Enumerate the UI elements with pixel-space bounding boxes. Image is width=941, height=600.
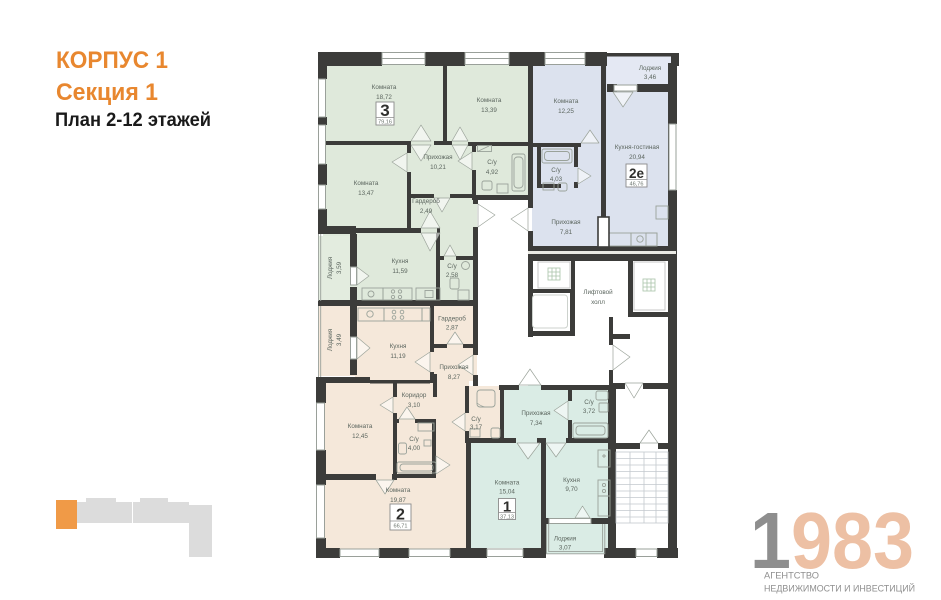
svg-text:С/у: С/у <box>471 416 481 423</box>
svg-text:37,13: 37,13 <box>500 514 514 520</box>
svg-text:13,39: 13,39 <box>481 107 497 114</box>
svg-text:1: 1 <box>503 499 511 516</box>
svg-text:3,46: 3,46 <box>644 74 657 81</box>
svg-text:Комната: Комната <box>477 97 502 104</box>
svg-text:С/у: С/у <box>584 399 594 406</box>
svg-text:2е: 2е <box>629 166 645 181</box>
svg-text:4,00: 4,00 <box>408 445 421 452</box>
svg-text:3,72: 3,72 <box>583 408 596 415</box>
svg-text:9,70: 9,70 <box>565 486 578 493</box>
svg-text:С/у: С/у <box>551 167 561 174</box>
svg-text:7,81: 7,81 <box>560 229 573 236</box>
svg-text:Прихожая: Прихожая <box>551 219 580 226</box>
svg-text:79,16: 79,16 <box>378 120 392 126</box>
svg-text:План 2-12 этажей: План 2-12 этажей <box>55 110 211 131</box>
svg-text:Прихожая: Прихожая <box>423 154 452 161</box>
svg-text:12,45: 12,45 <box>352 433 368 440</box>
svg-text:Кухня: Кухня <box>392 258 409 265</box>
svg-text:3,07: 3,07 <box>559 545 572 552</box>
svg-text:4,92: 4,92 <box>486 169 499 176</box>
svg-text:12,25: 12,25 <box>558 108 574 115</box>
svg-text:Комната: Комната <box>348 423 373 430</box>
svg-text:Кухня: Кухня <box>390 343 407 350</box>
svg-text:11,19: 11,19 <box>390 353 406 360</box>
svg-text:Кухня-гостиная: Кухня-гостиная <box>615 144 660 151</box>
svg-text:20,94: 20,94 <box>629 154 645 161</box>
svg-text:13,47: 13,47 <box>358 190 374 197</box>
svg-text:3,10: 3,10 <box>408 402 421 409</box>
svg-text:3,17: 3,17 <box>470 424 483 431</box>
svg-text:3,49: 3,49 <box>336 333 343 346</box>
svg-text:Комната: Комната <box>372 84 397 91</box>
svg-text:Гардероб: Гардероб <box>412 197 440 205</box>
svg-text:С/у: С/у <box>487 159 497 166</box>
svg-text:холл: холл <box>591 299 605 306</box>
svg-text:Секция 1: Секция 1 <box>56 79 158 106</box>
svg-text:Лоджия: Лоджия <box>327 257 334 279</box>
svg-text:2,49: 2,49 <box>420 208 433 215</box>
svg-text:Комната: Комната <box>386 487 411 494</box>
svg-text:2,58: 2,58 <box>446 272 459 279</box>
svg-text:11,59: 11,59 <box>392 268 408 275</box>
svg-text:АГЕНТСТВО: АГЕНТСТВО <box>764 571 819 582</box>
svg-text:С/у: С/у <box>447 263 457 270</box>
svg-text:Прихожая: Прихожая <box>521 410 550 417</box>
svg-text:Комната: Комната <box>495 480 520 487</box>
svg-text:46,76: 46,76 <box>630 182 644 188</box>
svg-text:2: 2 <box>396 507 405 524</box>
svg-text:66,71: 66,71 <box>394 524 408 530</box>
svg-text:Комната: Комната <box>554 98 579 105</box>
svg-text:15,04: 15,04 <box>499 489 515 496</box>
svg-text:Гардероб: Гардероб <box>438 315 466 323</box>
svg-text:3: 3 <box>380 101 389 120</box>
svg-text:С/у: С/у <box>409 436 419 443</box>
svg-text:3,59: 3,59 <box>336 261 343 274</box>
svg-text:2,87: 2,87 <box>446 325 459 332</box>
svg-text:8,27: 8,27 <box>448 374 461 381</box>
svg-text:Коридор: Коридор <box>402 392 427 399</box>
svg-text:Прихожая: Прихожая <box>439 364 468 371</box>
svg-text:7,34: 7,34 <box>530 420 543 427</box>
svg-text:19,87: 19,87 <box>390 497 406 504</box>
svg-text:Лоджия: Лоджия <box>554 536 576 543</box>
svg-text:Лифтовой: Лифтовой <box>583 288 613 296</box>
svg-text:Лоджия: Лоджия <box>639 65 661 72</box>
svg-text:КОРПУС 1: КОРПУС 1 <box>56 47 168 74</box>
svg-text:НЕДВИЖИМОСТИ И ИНВЕСТИЦИЙ: НЕДВИЖИМОСТИ И ИНВЕСТИЦИЙ <box>764 583 915 595</box>
svg-text:Комната: Комната <box>354 180 379 187</box>
svg-text:10,21: 10,21 <box>430 164 446 171</box>
svg-text:Кухня: Кухня <box>563 477 580 484</box>
svg-text:18,72: 18,72 <box>376 94 392 101</box>
svg-text:4,03: 4,03 <box>550 176 563 183</box>
svg-text:Лоджия: Лоджия <box>327 329 334 351</box>
